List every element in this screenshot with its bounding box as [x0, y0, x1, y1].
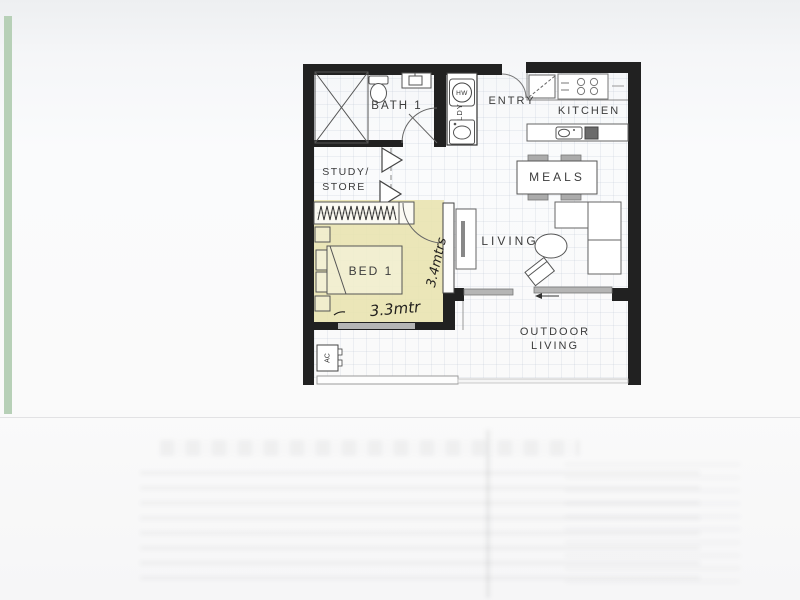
room-label-outdoor-line1: OUTDOOR: [510, 326, 600, 338]
toilet-icon: [369, 76, 388, 103]
wardrobe-icon: [314, 202, 414, 224]
armchair-icon: [525, 258, 554, 286]
scan-edge-strip: [4, 16, 12, 414]
outdoor-balustrade-line: [458, 379, 628, 383]
cooktop-icon: [558, 74, 608, 99]
bed1-window: [338, 323, 415, 329]
room-label-bed: BED 1: [326, 264, 416, 278]
room-label-living: LIVING: [465, 234, 555, 248]
scan-fold-line: [0, 417, 800, 418]
scanned-floor-plan-page: HW LDY: [0, 0, 800, 600]
room-label-outdoor-line2: LIVING: [510, 340, 600, 352]
room-label-study-line1: STUDY/: [301, 166, 391, 178]
bath-door-leaf: [409, 114, 437, 143]
room-label-study-line2: STORE: [299, 181, 389, 193]
sliding-door-icon: [464, 287, 612, 299]
bedside-table-icon: [315, 227, 330, 242]
bedside-table-icon: [315, 296, 330, 311]
basin-icon: [402, 73, 431, 88]
room-label-kitchen: KITCHEN: [544, 105, 634, 117]
laundry-label: LDY: [455, 103, 464, 121]
sofa-icon: [555, 202, 621, 274]
room-label-bath: BATH 1: [352, 100, 442, 112]
island-sink-icon: [527, 124, 628, 141]
room-label-meals: MEALS: [512, 170, 602, 184]
air-con-label: AC: [325, 353, 332, 363]
balustrade-icon: [317, 376, 458, 384]
